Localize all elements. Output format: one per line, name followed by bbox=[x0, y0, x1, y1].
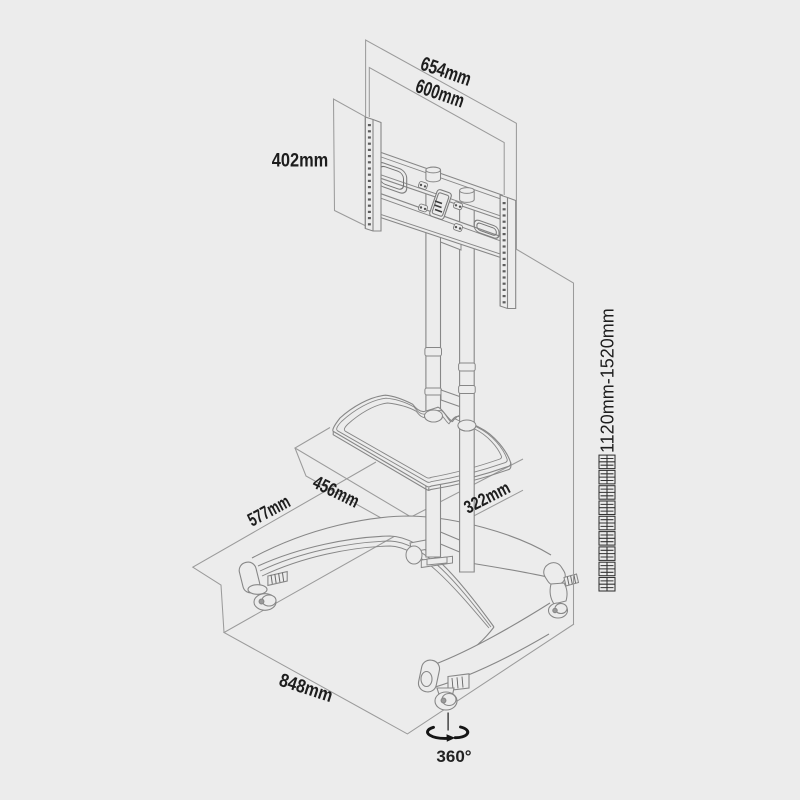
svg-text:402mm: 402mm bbox=[272, 151, 329, 172]
svg-text:360°: 360° bbox=[436, 747, 471, 766]
svg-text:1120mm-1520mm: 1120mm-1520mm bbox=[598, 308, 618, 453]
